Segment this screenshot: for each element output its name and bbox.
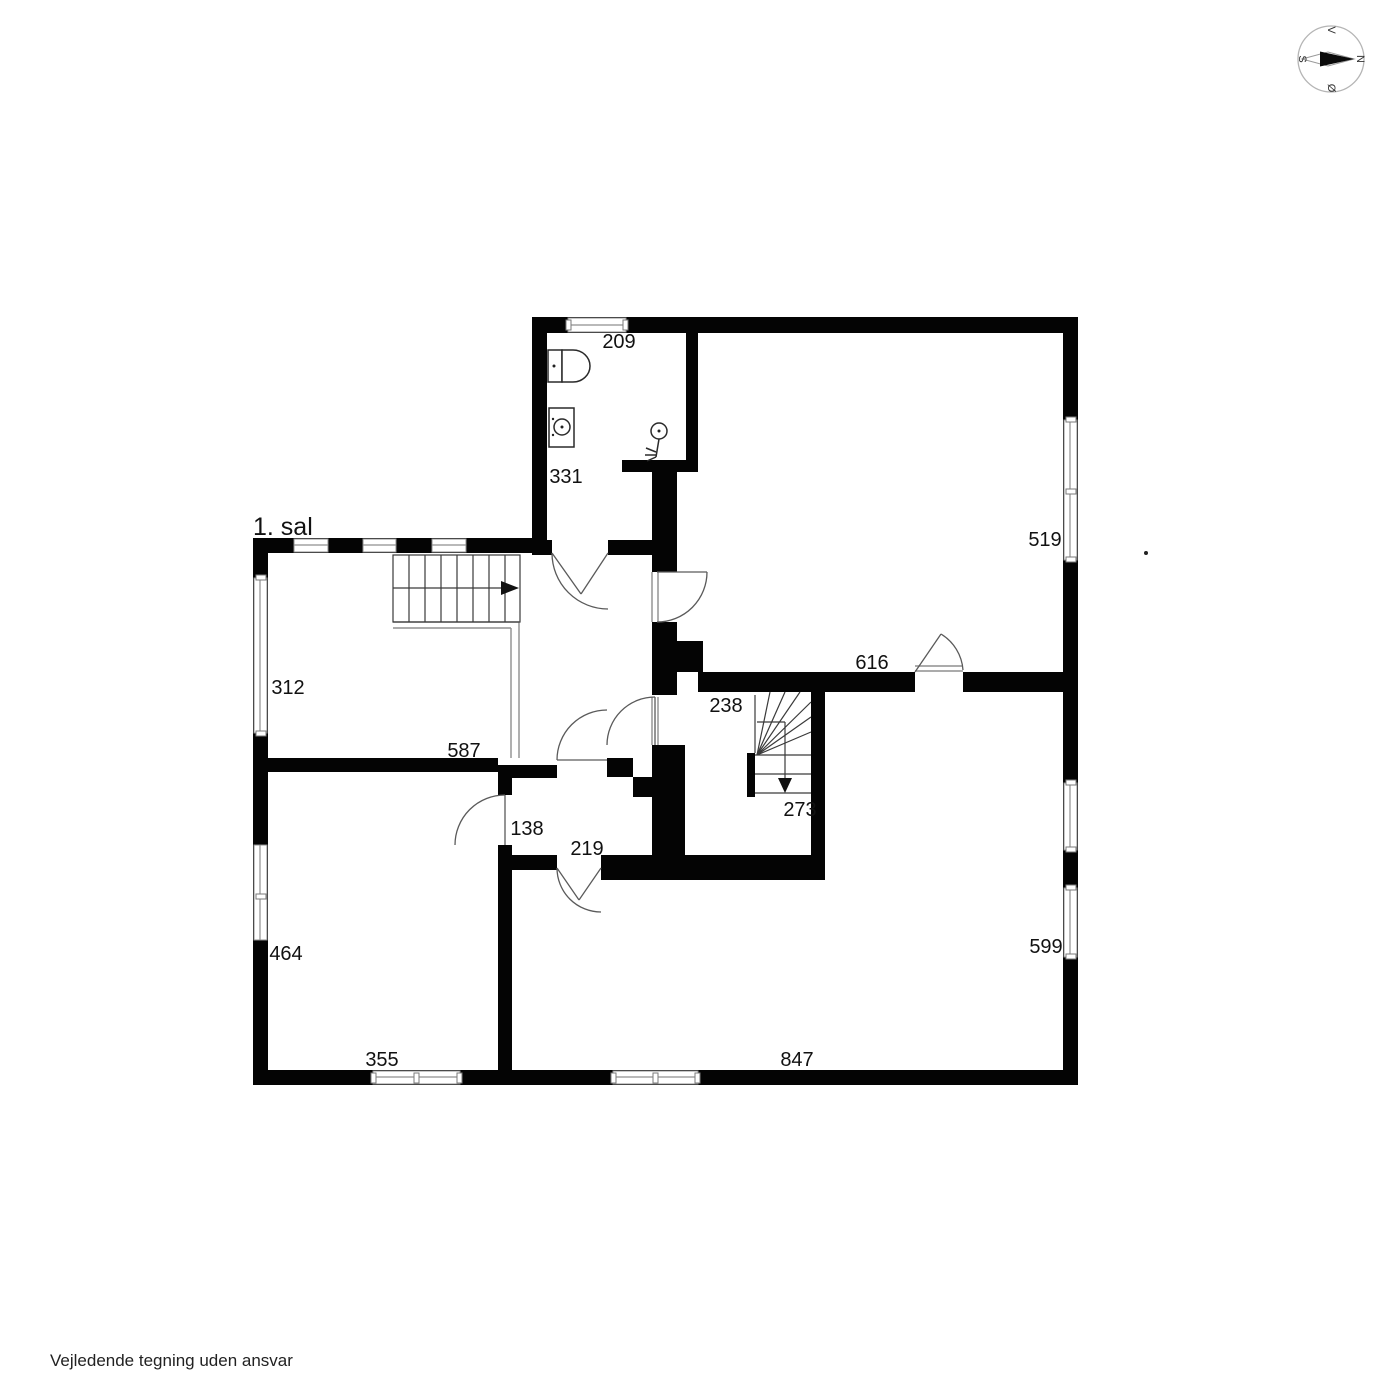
stairwell-void-edge: [393, 622, 519, 758]
door-upper-right-room: [915, 634, 963, 672]
door-inner-room-bottom: [557, 868, 601, 912]
print-dot: [1144, 551, 1148, 555]
dim-lower-left-window: 464: [269, 943, 302, 965]
floor-plan-drawing: 209 331 519 616 312 587 238 273 138 219 …: [0, 0, 1400, 1400]
dim-hallway-width: 238: [709, 695, 742, 717]
toilet-icon: [548, 350, 590, 382]
door-inner-room-left: [455, 795, 505, 845]
stairs-winder: [755, 692, 811, 793]
floor-title: 1. sal: [253, 513, 313, 541]
compass-label-south: S: [1296, 55, 1308, 62]
dim-upper-right-window: 519: [1028, 529, 1061, 551]
stairs-down-arrow: [778, 778, 792, 793]
door-landing-hallway: [607, 697, 658, 745]
dim-inner-room-door: 219: [570, 838, 603, 860]
door-bathroom: [552, 553, 608, 609]
stairs-up-arrow: [501, 581, 519, 595]
compass-rose: N S V Ø: [1296, 26, 1366, 93]
dim-bathroom-depth: 331: [549, 466, 582, 488]
dim-lower-left-bottom: 355: [365, 1049, 398, 1071]
dimension-labels: 209 331 519 616 312 587 238 273 138 219 …: [269, 331, 1062, 1071]
compass-label-north: N: [1354, 55, 1366, 63]
dim-bathroom-width: 209: [602, 331, 635, 353]
sink-icon: [549, 408, 574, 447]
stairs-straight: [393, 555, 520, 622]
floor-plan-page: 209 331 519 616 312 587 238 273 138 219 …: [0, 0, 1400, 1400]
dim-inner-room-width: 138: [510, 818, 543, 840]
dim-upper-right-width: 616: [855, 652, 888, 674]
disclaimer-text: Vejledende tegning uden ansvar: [50, 1351, 293, 1370]
compass-label-east: Ø: [1325, 84, 1337, 93]
compass-label-west: V: [1325, 26, 1337, 34]
dim-upper-left-wall: 587: [447, 740, 480, 762]
door-landing-inner-room: [557, 710, 607, 760]
dim-winder-stair: 273: [783, 799, 816, 821]
dim-lower-right-width: 847: [780, 1049, 813, 1071]
door-landing-room: [652, 572, 707, 622]
dim-lower-right-window: 599: [1029, 936, 1062, 958]
interior-walls: [268, 333, 1063, 1070]
shower-icon: [645, 423, 667, 461]
dim-upper-left-window: 312: [271, 677, 304, 699]
